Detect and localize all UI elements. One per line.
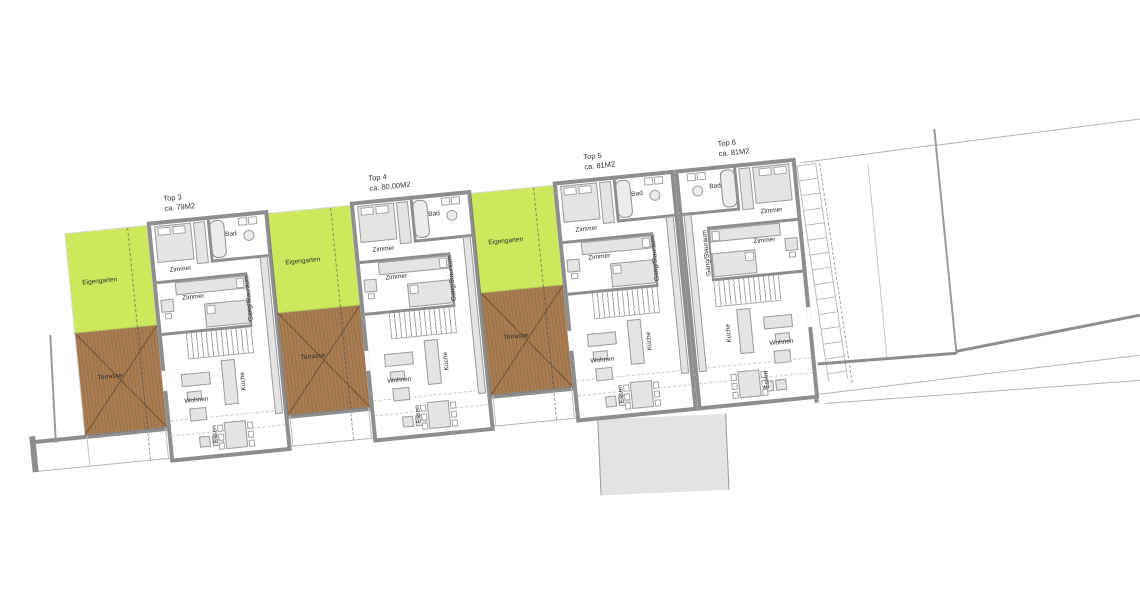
desk-icon	[566, 259, 580, 273]
fence-dashed-line	[137, 327, 148, 429]
lounge-chair-icon	[402, 416, 414, 428]
pillow-icon	[360, 207, 374, 216]
path-line-right	[825, 380, 1140, 404]
label-terrace: Terrasse	[97, 373, 122, 382]
label-kitchen: Küche	[442, 343, 454, 380]
washing-machine-icon	[441, 196, 451, 205]
kitchen-island-icon	[627, 319, 645, 365]
stairs-icon	[592, 287, 660, 319]
desk-icon	[363, 279, 377, 293]
washing-machine-icon	[248, 216, 258, 225]
lounge-chair-icon	[199, 436, 211, 448]
section-line	[373, 389, 487, 401]
washbasin-icon	[692, 185, 704, 197]
label-living: Wohnen	[590, 357, 615, 366]
sofa-icon	[763, 314, 793, 330]
unit-title: Top 6 ca. 81M2	[717, 136, 750, 158]
unit-title: Top 3 ca. 79M2	[163, 191, 196, 213]
private-garden: Eigengarten	[65, 226, 156, 334]
label-bedroom-2: Zimmer	[385, 274, 408, 283]
fence-line-continuation	[147, 429, 151, 460]
label-bedroom-1: Zimmer	[169, 266, 192, 275]
label-bath: Bad	[631, 191, 643, 199]
washing-machine-icon	[644, 176, 654, 185]
dining-chair-icon	[249, 439, 256, 447]
label-dining: Essen	[211, 419, 222, 450]
label-bedroom-1: Zimmer	[575, 226, 598, 235]
pillow-icon	[157, 227, 171, 236]
unit-area: ca. 79M2	[164, 201, 196, 214]
washing-machine-icon	[654, 175, 664, 184]
section-line	[170, 409, 284, 421]
sofa-icon	[587, 331, 617, 347]
chair-icon	[165, 313, 173, 320]
bathtub-icon	[209, 219, 228, 258]
label-private-garden: Eigengarten	[488, 237, 524, 247]
fence-dashed-line	[340, 307, 351, 409]
chair-icon	[571, 273, 579, 280]
pillow-icon	[172, 225, 186, 234]
label-private-garden: Eigengarten	[285, 257, 321, 267]
dining-chair-icon	[247, 421, 254, 429]
label-living: Wohnen	[387, 377, 412, 386]
dining-chair-icon	[655, 399, 662, 407]
dining-chair-icon	[450, 401, 457, 409]
kitchen-island-icon	[221, 359, 239, 405]
chair-icon	[789, 251, 797, 258]
house-unit-top4: Top 4 ca. 80,00M2	[350, 190, 495, 443]
pillow-icon	[773, 166, 787, 175]
label-bedroom-2: Zimmer	[588, 253, 611, 262]
fence-line-continuation	[350, 409, 354, 440]
label-bath: Bad	[709, 183, 721, 191]
dining-table-icon	[630, 380, 655, 409]
section-line	[576, 369, 690, 381]
dining-chair-icon	[654, 390, 661, 398]
washing-machine-icon	[451, 195, 461, 204]
bathtub-icon	[615, 179, 634, 218]
interior: Zimmer Bad Gang/Stauraum Zimmer Wohnen K…	[557, 174, 693, 418]
pillow-icon	[563, 186, 577, 195]
terrace: Terrasse	[278, 305, 370, 415]
dining-chair-icon	[653, 381, 660, 389]
label-dining: Essen	[414, 399, 425, 430]
kitchen-island-icon	[736, 308, 754, 354]
site-boundary-line	[937, 119, 1140, 146]
private-garden: Eigengarten	[471, 186, 562, 294]
dining-chair-icon	[452, 419, 459, 427]
house-unit-top3: Top 3 ca. 79M2	[147, 210, 292, 463]
dining-table-icon	[737, 369, 762, 398]
dining-table-icon	[224, 420, 249, 449]
label-terrace: Terrasse	[300, 353, 325, 362]
terrace: Terrasse	[75, 325, 167, 435]
unit-title: Top 4 ca. 80,00M2	[368, 170, 411, 193]
stairs-icon	[713, 275, 781, 307]
label-dining: Essen	[763, 364, 774, 395]
interior: Zimmer Bad Gang/Stauraum Zimmer Wohnen K…	[151, 214, 287, 458]
fence-dashed-line	[330, 208, 341, 308]
washbasin-icon	[446, 209, 458, 221]
lounge-chair-icon	[605, 396, 617, 408]
label-kitchen: Küche	[725, 315, 737, 352]
garden-strip-top4: Eigengarten Terrasse	[268, 202, 350, 210]
chair-icon	[368, 293, 376, 300]
label-bath: Bad	[225, 231, 237, 239]
pillow-icon	[758, 167, 772, 176]
dining-chair-icon	[451, 410, 458, 418]
label-private-garden: Eigengarten	[82, 277, 118, 287]
boundary-wall-left	[49, 335, 56, 443]
house-unit-top5: Top 5 ca. 81M2	[553, 170, 698, 423]
lounge-chair-icon	[775, 379, 787, 391]
label-kitchen: Küche	[645, 323, 657, 360]
dining-chair-icon	[731, 383, 738, 391]
label-terrace: Terrasse	[504, 333, 529, 342]
pillow-icon	[409, 285, 419, 295]
dining-table-icon	[427, 400, 452, 429]
interior: Zimmer Bad Gang/Stauraum Zimmer Wohnen K…	[678, 162, 814, 406]
floorplan-canvas: Eigengarten Terrasse Top 3 ca. 79M2	[0, 0, 1140, 600]
washbasin-icon	[649, 189, 661, 201]
pillow-icon	[744, 251, 754, 261]
label-bedroom-2: Zimmer	[753, 237, 776, 246]
armchair-icon	[773, 349, 791, 364]
fence-dashed-line	[127, 228, 138, 328]
label-kitchen: Küche	[239, 363, 251, 400]
label-bedroom-2: Zimmer	[182, 294, 205, 303]
private-garden: Eigengarten	[268, 206, 359, 314]
driveway	[597, 414, 729, 496]
dining-chair-icon	[732, 392, 739, 400]
fence-dashed-line	[533, 188, 544, 288]
label-bath: Bad	[428, 211, 440, 219]
kitchen-island-icon	[424, 339, 442, 385]
unit-title: Top 5 ca. 81M2	[583, 150, 616, 172]
label-dining: Essen	[617, 379, 628, 410]
desk-icon	[784, 237, 798, 251]
garden-strip-top3: Eigengarten Terrasse	[65, 222, 147, 230]
pillow-icon	[375, 205, 389, 214]
parcel-line	[867, 165, 887, 358]
pillow-icon	[578, 185, 592, 194]
label-living: Wohnen	[769, 339, 794, 348]
sofa-icon	[384, 351, 414, 367]
garden-strip-top5: Eigengarten Terrasse	[471, 182, 553, 190]
site-boundary-line	[802, 144, 937, 163]
fence-dashed-line	[543, 287, 554, 389]
stairs-icon	[186, 327, 254, 359]
dining-chair-icon	[248, 430, 255, 438]
label-living: Wohnen	[184, 397, 209, 406]
pillow-icon	[612, 264, 622, 274]
dining-chair-icon	[730, 374, 737, 382]
washing-machine-icon	[238, 217, 248, 226]
terrace: Terrasse	[481, 285, 573, 395]
armchair-icon	[189, 407, 207, 422]
house-unit-top6: Top 6 ca. 81M2	[674, 158, 819, 411]
armchair-icon	[392, 387, 410, 402]
fence-line-continuation	[553, 389, 557, 420]
desk-icon	[160, 299, 174, 313]
pillow-icon	[711, 230, 720, 241]
bathtub-icon	[412, 199, 431, 238]
unit-area: ca. 81M2	[584, 159, 616, 172]
washbasin-icon	[243, 229, 255, 241]
washing-machine-icon	[686, 172, 696, 181]
pillow-icon	[206, 305, 216, 315]
retaining-wall-right-upper	[956, 314, 1140, 353]
site-boundary-line-vertical	[933, 129, 957, 354]
section-line	[698, 357, 812, 369]
path-divider	[86, 435, 90, 466]
sofa-icon	[181, 371, 211, 387]
armchair-icon	[595, 367, 613, 382]
stairs-icon	[389, 307, 457, 339]
washing-machine-icon	[696, 171, 706, 180]
label-bedroom-1: Zimmer	[372, 246, 395, 255]
unit-area: ca. 81M2	[718, 146, 750, 159]
label-bedroom-1: Zimmer	[760, 207, 783, 216]
interior: Zimmer Bad Gang/Stauraum Zimmer Wohnen K…	[354, 194, 490, 438]
